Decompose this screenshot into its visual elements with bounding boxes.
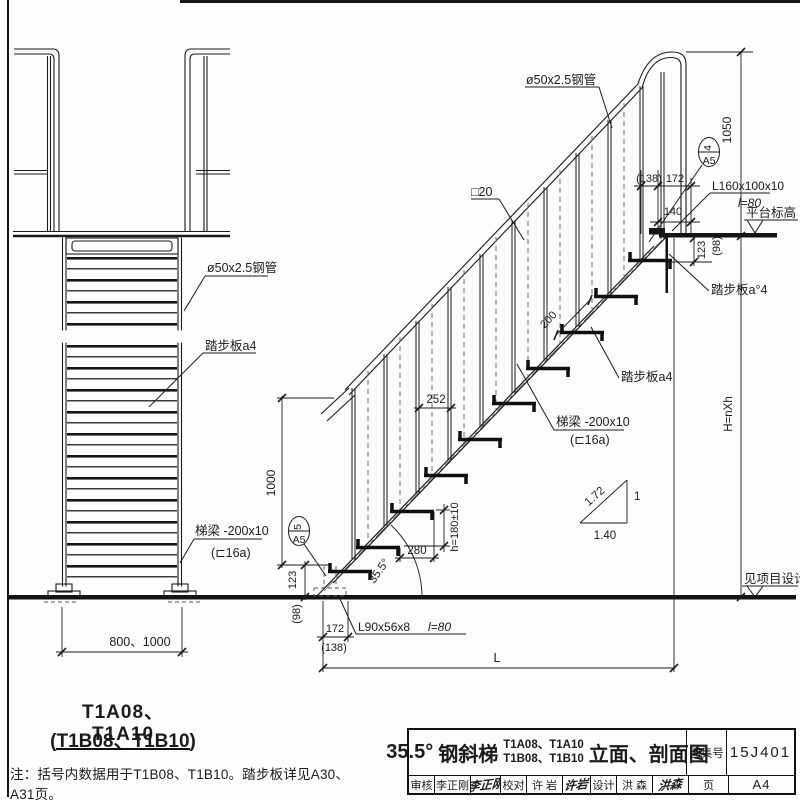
atlas-label: 图集号 [687,730,727,775]
slope-vertical: 1 [634,491,640,503]
title-models-line2: T1B08、T1B10 [503,753,584,765]
title-angle: 35.5° [386,741,433,764]
review-label: 审核 [409,776,435,793]
dim-1050: 1050 [720,116,734,143]
section-stringer-label-2: (⊏16a) [570,433,610,447]
dim-98-bottom: (98) [291,604,303,624]
callout-bottom-page: A5 [293,534,306,546]
check-signature-text: 许岩 [564,776,590,793]
drawing-title-cell: 35.5° 钢斜梯 T1A08、T1A10T1B08、T1B10 立面、剖面图 [409,730,687,775]
tread-label-mid: 踏步板a4 [621,370,672,384]
note-text: 注：括号内数据用于T1B08、T1B10。踏步板详见A30、A31页。 [10,763,370,800]
check-label: 校对 [501,776,527,793]
dim-123-bottom: 123 [287,571,299,589]
title-name: 钢斜梯 [438,738,498,767]
title-models: T1A08、T1A10T1B08、T1B10 [503,739,584,765]
dim-H: H=nXh [723,396,735,431]
atlas-number: 15J401 [727,730,794,775]
dim-98-top: (98) [711,236,723,256]
front-view-treads [67,257,177,584]
dim-252: 252 [426,394,445,406]
drawing-sheet: ø50x2.5钢管 踏步板a4 梯梁 -200x10 (⊏16a) 800、10… [0,0,800,800]
page-label: 页 [689,776,729,793]
model-designation-line2: (T1B08、T1B10) [44,726,202,753]
drawing-canvas: ø50x2.5钢管 踏步板a4 梯梁 -200x10 (⊏16a) 800、10… [0,0,800,800]
dim-1000: 1000 [264,469,278,496]
dim-138-bottom: (138) [321,642,347,654]
dim-200: 200 [538,309,559,331]
callout-bottom-number: 5 [292,524,304,530]
section-handrail [321,52,686,421]
design-signature: 洪森 [653,776,689,793]
design-name: 洪 森 [617,776,653,793]
title-block: 35.5° 钢斜梯 T1A08、T1A10T1B08、T1B10 立面、剖面图 … [407,728,796,795]
title-block-row-1: 35.5° 钢斜梯 T1A08、T1A10T1B08、T1B10 立面、剖面图 … [409,730,794,776]
check-signature: 许岩 [563,776,591,793]
section-stringer-label-1: 梯梁 -200x10 [556,414,630,429]
section-balusters [352,72,664,560]
front-stringer-label-1: 梯梁 -200x10 [195,523,269,538]
dim-172-bottom: 172 [326,623,344,635]
section-balusters-hidden [368,103,624,542]
bottom-bracket-length: l=80 [428,620,451,634]
design-signature-text: 洪森 [658,776,684,793]
dim-138-top: (138) [636,173,662,185]
bottom-bracket-label: L90x56x8 [358,620,410,634]
check-name: 许 岩 [527,776,563,793]
review-signature-text: 李正刚 [471,776,501,793]
see-project-label: 见项目设计 [744,571,800,586]
review-signature: 李正刚 [471,776,501,793]
dim-280: 280 [407,545,426,557]
callout-top-number: 4 [702,145,714,151]
top-bracket-label: L160x100x10 [712,179,784,193]
section-pipe-label: ø50x2.5钢管 [526,72,596,87]
front-pipe-label: ø50x2.5钢管 [207,260,277,275]
front-stringer-label-2: (⊏16a) [211,546,251,560]
review-name: 李正刚 [435,776,471,793]
callout-top-page: A5 [703,155,716,167]
platform-elevation-label: 平台标高 [746,205,796,220]
dim-L: L [494,651,501,665]
dim-140: 140 [664,206,682,218]
tread-label-top: 踏步板a°4 [711,283,767,297]
ground-line [8,595,796,600]
dim-h180: h=180±10 [449,502,461,551]
title-models-line1: T1A08、T1A10 [503,739,584,751]
slope-horizontal: 1.40 [594,530,616,542]
page-number: A4 [729,776,794,793]
title-block-row-2: 审核 李正刚 李正刚 校对 许 岩 许岩 设计 洪 森 洪森 页 A4 [409,776,794,793]
dim-172-top: 172 [666,173,684,185]
front-tread-label: 踏步板a4 [205,339,256,353]
slope-hypotenuse: 1.72 [583,485,608,509]
section-baluster-label: □20 [471,185,493,199]
dim-123-top: 123 [696,241,708,259]
design-label: 设计 [591,776,617,793]
front-width-dim: 800、1000 [109,635,170,649]
